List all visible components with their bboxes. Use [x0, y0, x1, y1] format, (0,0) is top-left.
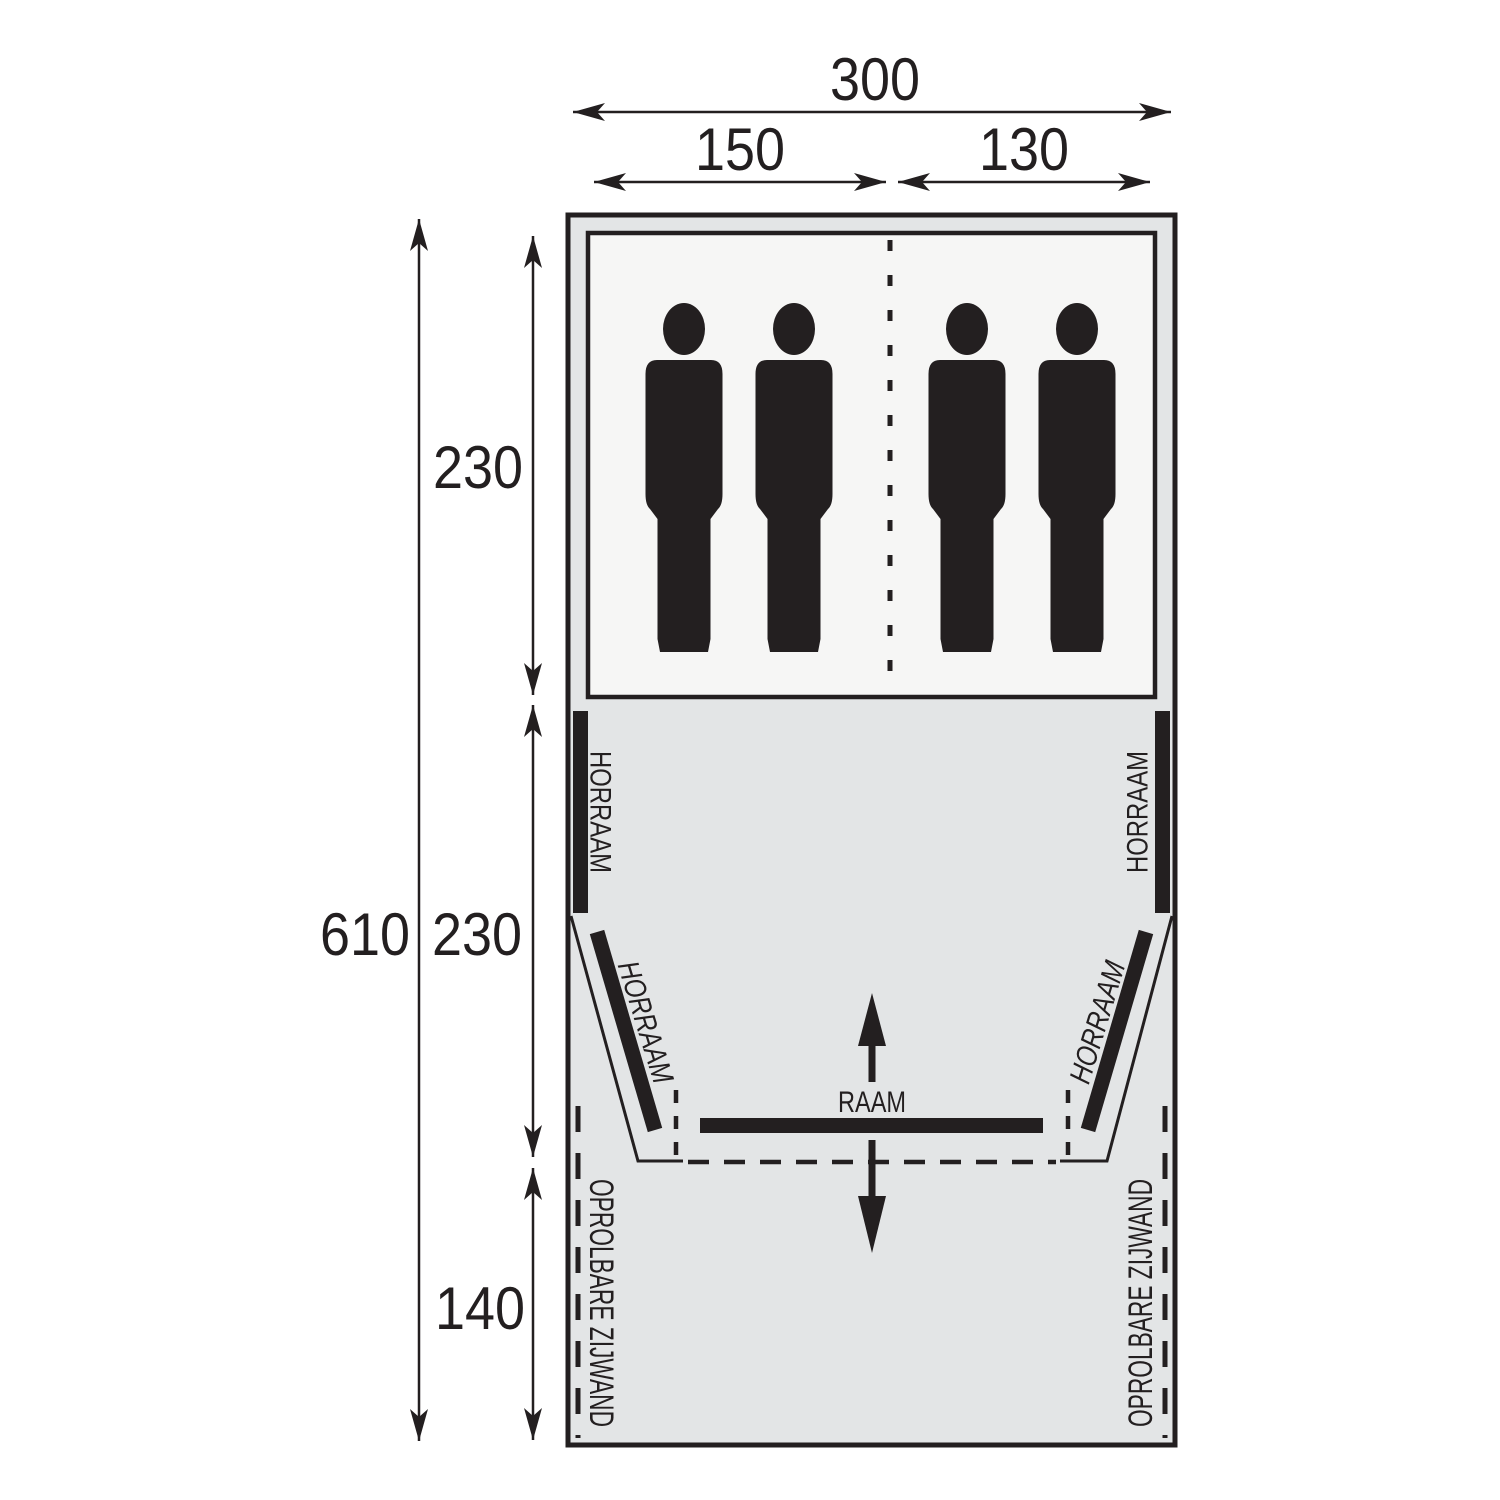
screen-window-label-left-wall: HORRAAM	[584, 751, 617, 873]
dimension-total-length: 610	[320, 219, 419, 1441]
rollup-sidewall-label-left: OPROLBARE ZIJWAND	[582, 1179, 620, 1427]
dimension-living-length: 230	[432, 705, 533, 1157]
dimension-right-berth-width: 130	[898, 116, 1150, 183]
dimension-sleeping-length: 230	[433, 236, 533, 695]
screen-window-label-right-wall: HORRAAM	[1122, 751, 1155, 873]
dimension-living-length-value: 230	[432, 901, 522, 968]
rollup-sidewall-label-right: OPROLBARE ZIJWAND	[1122, 1179, 1160, 1427]
dimension-canopy-length-value: 140	[435, 1275, 525, 1342]
dimension-total-length-value: 610	[320, 901, 410, 968]
dimension-total-width: 300	[573, 46, 1171, 113]
dimension-right-berth-width-value: 130	[979, 116, 1069, 183]
dimension-total-width-value: 300	[830, 46, 920, 113]
dimension-left-berth-width-value: 150	[695, 116, 785, 183]
dimension-left-berth-width: 150	[594, 116, 886, 183]
window-bar	[700, 1118, 1043, 1133]
tent-floorplan-canvas: HORRAAM HORRAAM HORRAAM HORRAAM RAAM OPR…	[0, 0, 1500, 1500]
tent-floorplan-diagram: HORRAAM HORRAAM HORRAAM HORRAAM RAAM OPR…	[0, 0, 1500, 1500]
window-label: RAAM	[838, 1086, 906, 1119]
dimension-canopy-length: 140	[435, 1168, 533, 1440]
dimension-sleeping-length-value: 230	[433, 434, 523, 501]
screen-window-bar-right-wall	[1155, 711, 1170, 913]
